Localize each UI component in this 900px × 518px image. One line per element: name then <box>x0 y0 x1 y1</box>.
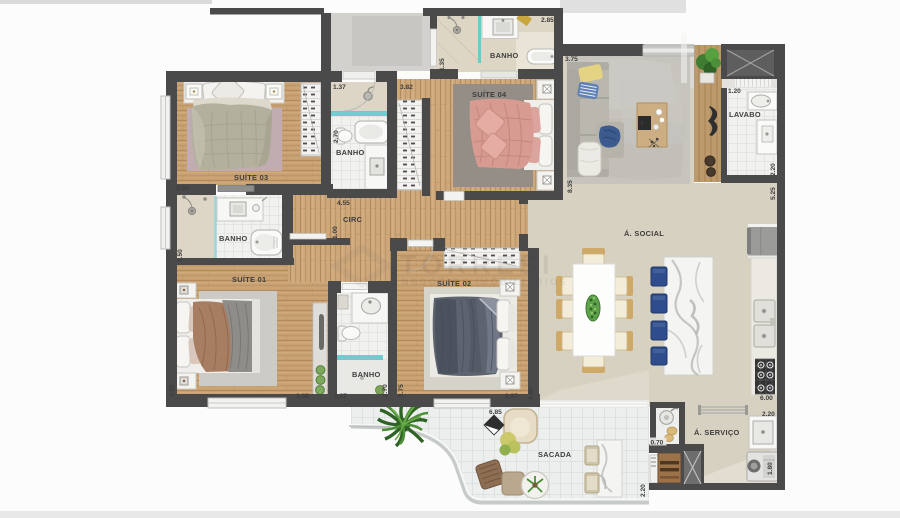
svg-text:0.70: 0.70 <box>651 440 664 447</box>
svg-text:1.37: 1.37 <box>334 393 347 400</box>
svg-text:3.25: 3.25 <box>169 384 176 397</box>
svg-text:1.50: 1.50 <box>177 249 184 262</box>
svg-text:SUÍTE 04: SUÍTE 04 <box>472 90 507 99</box>
svg-text:2.20: 2.20 <box>762 411 775 418</box>
svg-text:BANHO: BANHO <box>490 51 519 60</box>
svg-text:1.80: 1.80 <box>767 462 774 475</box>
svg-text:3.65: 3.65 <box>176 185 189 192</box>
svg-text:SUÍTE 02: SUÍTE 02 <box>437 279 471 288</box>
svg-text:6.85: 6.85 <box>489 409 502 416</box>
svg-text:F: F <box>641 121 644 127</box>
svg-text:4.55: 4.55 <box>337 200 350 207</box>
svg-text:2.70: 2.70 <box>333 130 340 143</box>
svg-text:2.70: 2.70 <box>382 384 389 397</box>
svg-text:2.20: 2.20 <box>640 484 647 497</box>
svg-text:2.20: 2.20 <box>770 163 777 176</box>
svg-text:2.85: 2.85 <box>541 17 554 24</box>
svg-text:3.82: 3.82 <box>400 84 413 91</box>
svg-text:1.20: 1.20 <box>728 88 741 95</box>
svg-text:3.75: 3.75 <box>565 56 578 63</box>
svg-text:SUÍTE 01: SUÍTE 01 <box>232 275 266 284</box>
svg-text:5.25: 5.25 <box>770 187 777 200</box>
svg-text:2.97: 2.97 <box>505 393 518 400</box>
svg-text:Á. SOCIAL: Á. SOCIAL <box>624 229 664 238</box>
svg-text:3.75: 3.75 <box>398 384 405 397</box>
svg-text:1.35: 1.35 <box>439 58 446 71</box>
svg-text:NEGÓCIOS IMOBILIÁRIOS: NEGÓCIOS IMOBILIÁRIOS <box>402 276 568 287</box>
svg-text:BANHO: BANHO <box>352 370 381 379</box>
svg-text:1.00: 1.00 <box>332 226 339 239</box>
svg-text:LAVABO: LAVABO <box>729 110 761 119</box>
svg-text:1.37: 1.37 <box>333 84 346 91</box>
svg-text:CIRC: CIRC <box>343 215 363 224</box>
svg-text:Á. SERVIÇO: Á. SERVIÇO <box>694 428 740 437</box>
svg-text:BANHO: BANHO <box>219 234 248 243</box>
svg-text:SUÍTE 03: SUÍTE 03 <box>234 173 268 182</box>
svg-text:8.35: 8.35 <box>567 180 574 193</box>
svg-text:SACADA: SACADA <box>538 450 572 459</box>
svg-text:3.65: 3.65 <box>296 393 309 400</box>
svg-text:TORRESI: TORRESI <box>400 250 555 280</box>
svg-text:4.90: 4.90 <box>528 387 535 400</box>
svg-text:6.00: 6.00 <box>760 395 773 402</box>
svg-text:BANHO: BANHO <box>336 148 365 157</box>
